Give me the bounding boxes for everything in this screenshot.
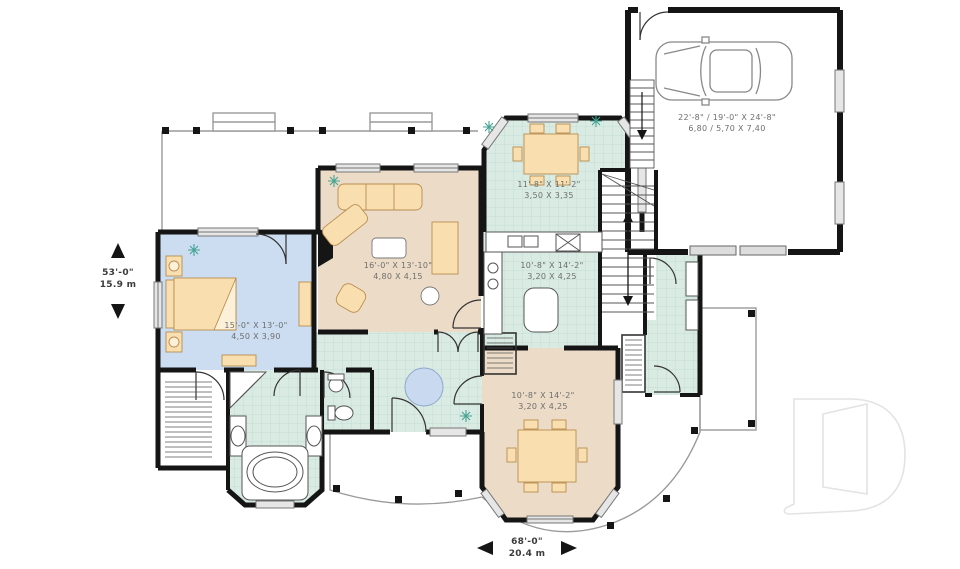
window — [256, 501, 294, 508]
bedroom-bench — [222, 355, 256, 366]
arrow-down-icon — [111, 304, 125, 319]
window — [430, 428, 466, 436]
window — [835, 182, 844, 224]
chair — [507, 448, 516, 462]
bathtub-inner — [253, 457, 297, 487]
vanity-sink — [307, 426, 321, 446]
chair — [580, 147, 589, 161]
bed-headboard — [166, 280, 174, 328]
depth-metric: 15.9 m — [86, 279, 150, 291]
arrow-right-icon — [561, 541, 577, 555]
side-table — [421, 287, 439, 305]
overall-width-label: 68'-0" 20.4 m — [492, 536, 562, 560]
window — [527, 516, 573, 523]
dining-table — [518, 430, 576, 482]
powder-counter — [328, 374, 344, 380]
depth-imperial: 53'-0" — [86, 267, 150, 279]
arrow-up-icon — [111, 243, 125, 258]
laundry-counter — [686, 262, 698, 296]
mudroom-fixtures — [686, 262, 698, 330]
bedroom-imperial: 15'-0" X 13'-0" — [196, 320, 316, 331]
window — [414, 164, 458, 172]
window — [638, 168, 646, 212]
dinette-table — [524, 134, 578, 174]
toilet-tank — [328, 406, 335, 420]
window — [198, 228, 258, 236]
kitchen-counter — [486, 232, 602, 252]
dining-metric: 3,20 X 4,25 — [483, 401, 603, 412]
window — [528, 114, 578, 122]
floor-plan: 11'-8" X 11'-2" 3,50 X 3,35 16'-0" X 13'… — [0, 0, 960, 569]
dining-room-dimensions-label: 10'-8" X 14'-2" 3,20 X 4,25 — [483, 390, 603, 412]
living-metric: 4,80 X 4,15 — [338, 271, 458, 282]
dinette-metric: 3,50 X 3,35 — [489, 190, 609, 201]
kitchen-imperial: 10'-8" X 14'-2" — [492, 260, 612, 271]
lamp — [169, 337, 179, 347]
bedroom-dimensions-label: 15'-0" X 13'-0" 4,50 X 3,90 — [196, 320, 316, 342]
kitchen-sink — [508, 236, 522, 247]
dinette-dimensions-label: 11'-8" X 11'-2" 3,50 X 3,35 — [489, 179, 609, 201]
drummond-logo-watermark — [784, 399, 905, 514]
garage-imperial: 22'-8" / 19'-0" X 24'-8" — [647, 112, 807, 123]
overall-depth-label: 53'-0" 15.9 m — [86, 267, 150, 291]
garage-dimensions-label: 22'-8" / 19'-0" X 24'-8" 6,80 / 5,70 X 7… — [647, 112, 807, 134]
chair — [578, 448, 587, 462]
bedroom-metric: 4,50 X 3,90 — [196, 331, 316, 342]
window — [154, 282, 162, 328]
car-mirror — [702, 37, 709, 43]
entry-rug — [405, 368, 443, 406]
chair — [552, 483, 566, 492]
garage-metric: 6,80 / 5,70 X 7,40 — [647, 123, 807, 134]
dinette-imperial: 11'-8" X 11'-2" — [489, 179, 609, 190]
window — [614, 380, 622, 424]
window — [336, 164, 380, 172]
lamp — [169, 261, 179, 271]
width-imperial: 68'-0" — [492, 536, 562, 548]
kitchen-metric: 3,20 X 4,25 — [492, 271, 612, 282]
chair — [513, 147, 522, 161]
chair — [556, 124, 570, 133]
living-imperial: 16'-0" X 13'-10" — [338, 260, 458, 271]
width-metric: 20.4 m — [492, 548, 562, 560]
car-mirror — [702, 99, 709, 105]
kitchen-sink — [524, 236, 538, 247]
side-porch — [700, 308, 756, 430]
chair — [552, 420, 566, 429]
dining-imperial: 10'-8" X 14'-2" — [483, 390, 603, 401]
window — [835, 70, 844, 112]
walkin-closet-floor — [158, 370, 228, 468]
toilet — [335, 406, 353, 420]
chair — [530, 124, 544, 133]
coffee-table — [372, 238, 406, 258]
chair — [524, 420, 538, 429]
arrow-left-icon — [477, 541, 493, 555]
car — [656, 37, 792, 105]
chair — [524, 483, 538, 492]
laundry-counter — [686, 300, 698, 330]
dishwasher — [556, 234, 580, 251]
vanity-sink — [231, 426, 245, 446]
kitchen-island — [524, 288, 558, 332]
dining-room-furniture — [507, 420, 587, 492]
kitchen-dimensions-label: 10'-8" X 14'-2" 3,20 X 4,25 — [492, 260, 612, 282]
living-room-dimensions-label: 16'-0" X 13'-10" 4,80 X 4,15 — [338, 260, 458, 282]
